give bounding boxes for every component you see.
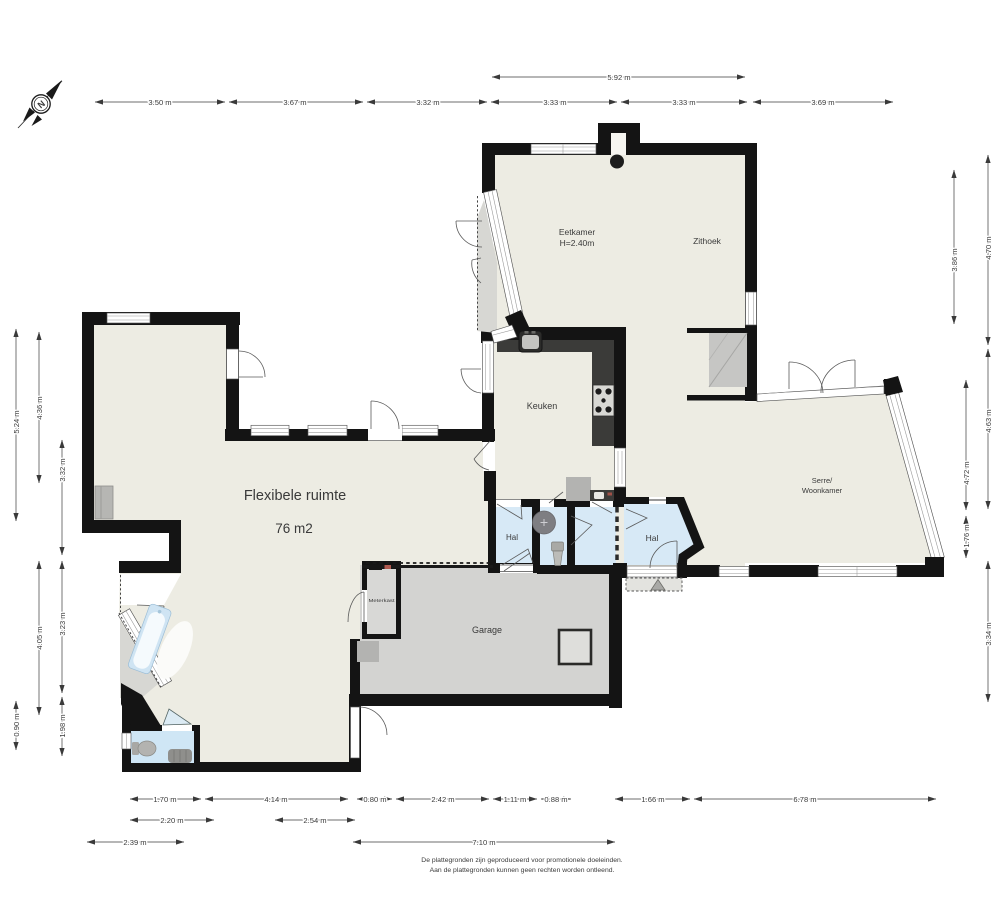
- svg-text:De plattegronden zijn geproduc: De plattegronden zijn geproduceerd voor …: [421, 857, 623, 864]
- svg-text:7.10 m: 7.10 m: [472, 838, 495, 847]
- svg-text:Serre/: Serre/: [812, 476, 833, 485]
- svg-text:3.50 m: 3.50 m: [148, 98, 171, 107]
- svg-text:1.11 m: 1.11 m: [504, 795, 527, 804]
- svg-text:6.78 m: 6.78 m: [793, 795, 816, 804]
- svg-text:3.32 m: 3.32 m: [416, 98, 439, 107]
- svg-text:Flexibele ruimte: Flexibele ruimte: [244, 488, 346, 504]
- svg-text:4.36 m: 4.36 m: [35, 396, 44, 419]
- svg-text:1.70 m: 1.70 m: [153, 795, 176, 804]
- svg-text:3.69 m: 3.69 m: [811, 98, 834, 107]
- svg-text:Garage: Garage: [472, 625, 502, 635]
- svg-text:3.33 m: 3.33 m: [672, 98, 695, 107]
- svg-text:0.88 m: 0.88 m: [544, 795, 567, 804]
- svg-text:Hal: Hal: [646, 533, 659, 543]
- svg-text:Keuken: Keuken: [527, 401, 558, 411]
- svg-text:1.98 m: 1.98 m: [58, 714, 67, 737]
- svg-text:4.72 m: 4.72 m: [962, 461, 971, 484]
- svg-text:1.76 m: 1.76 m: [962, 524, 971, 547]
- svg-text:0.90 m: 0.90 m: [12, 713, 21, 736]
- svg-text:3.32 m: 3.32 m: [58, 458, 67, 481]
- svg-text:2.54 m: 2.54 m: [303, 816, 326, 825]
- svg-text:4.70 m: 4.70 m: [984, 236, 993, 259]
- svg-text:2.42 m: 2.42 m: [431, 795, 454, 804]
- svg-text:Eetkamer: Eetkamer: [559, 227, 596, 237]
- svg-text:3.86 m: 3.86 m: [950, 248, 959, 271]
- svg-text:Aan de plattegronden kunnen ge: Aan de plattegronden kunnen geen rechten…: [430, 867, 615, 874]
- svg-text:4.63 m: 4.63 m: [984, 409, 993, 432]
- svg-text:0.80 m: 0.80 m: [363, 795, 386, 804]
- svg-text:2.39 m: 2.39 m: [123, 838, 146, 847]
- svg-text:2.20 m: 2.20 m: [160, 816, 183, 825]
- svg-text:5.24 m: 5.24 m: [12, 410, 21, 433]
- svg-text:3.67 m: 3.67 m: [283, 98, 306, 107]
- svg-text:4.05 m: 4.05 m: [35, 626, 44, 649]
- svg-text:Zithoek: Zithoek: [693, 236, 722, 246]
- svg-text:5.92 m: 5.92 m: [607, 73, 630, 82]
- svg-text:Hal: Hal: [506, 533, 518, 542]
- svg-text:76 m2: 76 m2: [275, 521, 313, 536]
- svg-text:H=2.40m: H=2.40m: [560, 238, 595, 248]
- svg-text:3.33 m: 3.33 m: [543, 98, 566, 107]
- svg-text:3.23 m: 3.23 m: [58, 612, 67, 635]
- svg-text:Woonkamer: Woonkamer: [802, 486, 843, 495]
- svg-text:3.34 m: 3.34 m: [984, 622, 993, 645]
- svg-text:4.14 m: 4.14 m: [264, 795, 287, 804]
- svg-text:Meterkast: Meterkast: [369, 598, 396, 603]
- svg-text:1.66 m: 1.66 m: [641, 795, 664, 804]
